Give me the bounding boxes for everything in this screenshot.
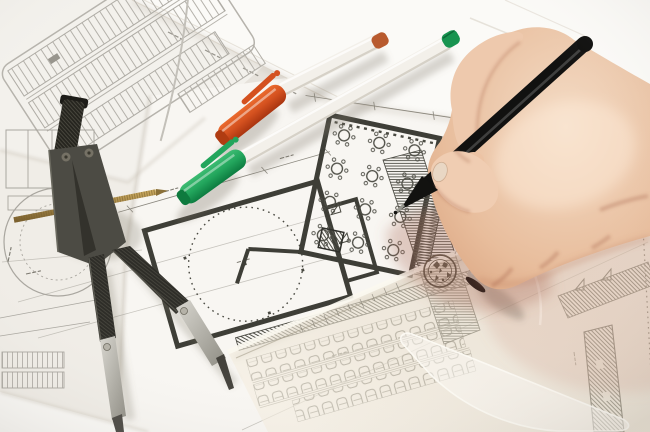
vignette <box>0 0 650 432</box>
photo-architect-workspace <box>0 0 650 432</box>
